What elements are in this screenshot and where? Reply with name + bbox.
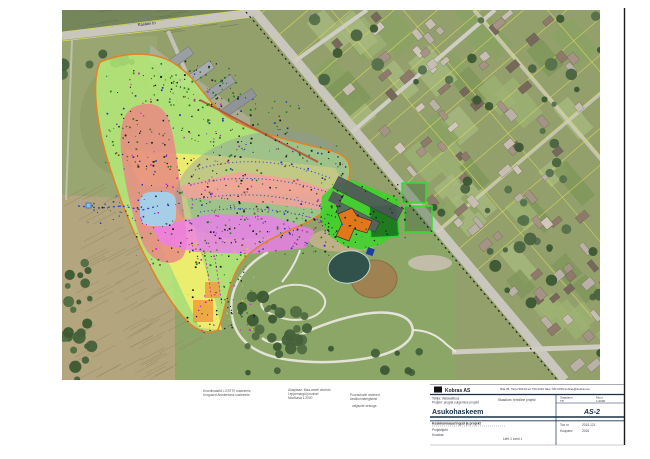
map-dot <box>238 186 240 188</box>
map-dot <box>328 151 330 153</box>
map-dot <box>154 75 155 76</box>
map-dot <box>245 266 246 267</box>
tree <box>574 87 580 93</box>
map-dot <box>167 204 168 205</box>
tree <box>268 315 277 324</box>
map-dot <box>251 290 252 291</box>
map-dot <box>387 198 388 199</box>
map-dot <box>219 155 220 156</box>
map-dot <box>153 174 154 175</box>
map-dot <box>316 193 317 194</box>
map-dot <box>344 217 345 218</box>
map-dot <box>150 101 152 103</box>
zone-orange-small-2 <box>193 300 213 322</box>
map-dot <box>154 213 155 214</box>
map-dot <box>146 224 147 225</box>
map-dot <box>221 299 222 300</box>
map-dot <box>238 196 239 197</box>
map-dot <box>296 218 298 220</box>
map-dot <box>220 311 222 313</box>
map-dot <box>151 142 153 144</box>
tree <box>546 244 553 251</box>
map-dot <box>347 246 348 247</box>
map-dot <box>122 128 123 129</box>
map-dot <box>287 220 289 222</box>
map-dot <box>193 174 194 175</box>
map-dot <box>404 219 406 221</box>
map-dot <box>204 190 205 191</box>
map-dot <box>237 308 238 309</box>
tree <box>561 224 571 234</box>
map-dot <box>191 198 192 199</box>
map-dot <box>256 233 257 234</box>
map-dot <box>120 211 121 212</box>
map-dot <box>191 207 192 208</box>
map-dot <box>152 263 154 265</box>
map-dot <box>189 244 190 245</box>
tree <box>545 58 558 71</box>
map-dot <box>169 98 170 99</box>
map-dot <box>191 81 193 83</box>
tree <box>77 272 83 278</box>
map-dot <box>362 236 363 237</box>
map-notes: Koordinaadid L-EST97 susteemis Korgused … <box>203 388 380 408</box>
map-dot <box>141 196 142 197</box>
map-dot <box>285 210 286 211</box>
map-dot <box>224 198 225 199</box>
map-dot <box>225 240 226 241</box>
map-dot <box>202 107 204 109</box>
map-dot <box>163 120 165 122</box>
map-dot <box>247 312 248 313</box>
house <box>616 344 629 358</box>
map-dot <box>172 221 173 222</box>
company-logo <box>434 387 442 393</box>
map-dot <box>215 235 216 236</box>
map-dot <box>262 201 263 202</box>
map-dot <box>255 108 256 109</box>
map-dot <box>343 195 344 196</box>
map-dot <box>228 100 229 101</box>
map-dot <box>203 196 204 197</box>
map-dot <box>207 121 208 122</box>
tree <box>556 15 564 23</box>
map-dot <box>191 138 192 139</box>
tree <box>285 343 297 355</box>
map-dot <box>398 233 399 234</box>
tree <box>247 292 258 303</box>
map-dot <box>194 99 196 101</box>
map-dot <box>177 191 178 192</box>
map-dot <box>170 77 171 78</box>
map-dot <box>306 243 307 244</box>
map-dot <box>289 232 291 234</box>
map-dot <box>222 89 223 90</box>
map-dot <box>331 215 332 216</box>
map-dot <box>168 120 169 121</box>
site-plan-map: Kastani tn Koordinaadid L-EST97 susteemi… <box>0 0 650 459</box>
map-dot <box>186 91 187 92</box>
map-dot <box>328 234 329 235</box>
map-dot <box>191 184 192 185</box>
map-dot <box>204 295 205 296</box>
map-dot <box>314 219 316 221</box>
tree <box>84 344 89 349</box>
map-dot <box>176 82 177 83</box>
map-dot <box>189 70 191 72</box>
map-dot <box>277 211 279 213</box>
tree <box>74 376 80 382</box>
map-dot <box>245 308 247 310</box>
tree <box>487 248 494 255</box>
map-dot <box>274 122 276 124</box>
map-dot <box>168 139 169 140</box>
map-dot <box>240 252 241 253</box>
map-dot <box>187 163 188 164</box>
map-dot <box>154 151 155 152</box>
map-dot <box>325 233 326 234</box>
map-dot <box>311 150 313 152</box>
map-dot <box>256 180 257 181</box>
map-dot <box>109 130 110 131</box>
map-dot <box>304 245 305 246</box>
map-dot <box>183 137 184 138</box>
map-dot <box>137 141 139 143</box>
map-dot <box>390 207 392 209</box>
map-dot <box>143 216 145 218</box>
map-dot <box>110 131 111 132</box>
map-dot <box>200 77 202 79</box>
map-dot <box>291 247 293 249</box>
map-dot <box>166 187 167 188</box>
map-dot <box>199 326 200 327</box>
map-dot <box>265 134 266 135</box>
map-dot <box>190 160 191 161</box>
zone-blue <box>140 192 176 226</box>
staadium-value: TP <box>560 399 564 403</box>
map-dot <box>206 243 207 244</box>
map-dot <box>187 321 188 322</box>
map-dot <box>143 115 144 116</box>
map-dot <box>241 180 243 182</box>
map-dot <box>182 192 183 193</box>
map-dot <box>130 111 131 112</box>
map-dot <box>224 242 225 243</box>
map-dot <box>335 163 336 164</box>
map-dot <box>286 132 287 133</box>
map-dot <box>221 147 222 148</box>
stage-line: Staadium: tehniline projekt <box>498 398 536 402</box>
map-dot <box>166 155 167 156</box>
tree <box>370 24 378 32</box>
map-dot <box>112 141 114 143</box>
map-dot <box>171 82 172 83</box>
map-dot <box>230 207 231 208</box>
map-dot <box>179 79 180 80</box>
tree <box>526 297 537 308</box>
worknr-label: Too nr <box>560 423 570 427</box>
map-dot <box>266 243 267 244</box>
tree <box>546 169 554 177</box>
map-dot <box>210 330 211 331</box>
map-dot <box>167 115 168 116</box>
map-dot <box>151 185 152 186</box>
map-dot <box>222 82 223 83</box>
drawing-sheet: Kastani tn Koordinaadid L-EST97 susteemi… <box>0 0 650 459</box>
map-dot <box>201 194 202 195</box>
map-dot <box>219 206 220 207</box>
map-dot <box>142 103 143 104</box>
map-dot <box>166 184 168 186</box>
map-dot <box>197 165 199 167</box>
worknr-value: 2015-121 <box>582 423 596 427</box>
map-dot <box>197 65 198 66</box>
map-dot <box>189 105 191 107</box>
map-dot <box>196 263 198 265</box>
map-dot <box>258 251 260 253</box>
map-dot <box>207 119 209 121</box>
map-dot <box>117 92 118 93</box>
map-dot <box>187 317 189 319</box>
map-dot <box>292 246 293 247</box>
map-dot <box>176 158 177 159</box>
map-dot <box>198 135 199 136</box>
map-dot <box>181 130 182 131</box>
map-dot <box>196 69 197 70</box>
map-dot <box>166 154 167 155</box>
map-dot <box>105 162 106 163</box>
lawn-patch <box>595 322 635 364</box>
tree <box>65 283 71 289</box>
map-dot <box>143 75 144 76</box>
map-dot <box>204 253 205 254</box>
map-dot <box>230 130 231 131</box>
map-dot <box>291 163 293 165</box>
map-dot <box>209 192 211 194</box>
map-dot <box>293 180 295 182</box>
map-dot <box>339 164 340 165</box>
map-dot <box>240 94 241 95</box>
map-dot <box>193 158 194 159</box>
map-dot <box>337 156 338 157</box>
map-dot <box>337 190 338 191</box>
map-dot <box>216 133 217 134</box>
map-dot <box>231 313 232 314</box>
map-dot <box>139 192 140 193</box>
house <box>609 341 625 356</box>
map-dot <box>192 289 194 291</box>
tree <box>275 350 283 358</box>
map-dot <box>229 74 230 75</box>
map-dot <box>220 135 221 136</box>
map-dot <box>324 230 326 232</box>
map-dot <box>250 304 251 305</box>
map-dot <box>294 221 295 222</box>
map-dot <box>162 226 163 227</box>
map-dot <box>116 152 118 154</box>
map-dot <box>242 216 243 217</box>
map-dot <box>189 230 190 231</box>
map-dot <box>237 259 238 260</box>
map-dot <box>305 220 307 222</box>
tree <box>552 158 562 168</box>
map-dot <box>193 94 194 95</box>
map-dot <box>221 277 222 278</box>
tree <box>371 58 384 71</box>
map-dot <box>215 94 216 95</box>
map-dot <box>227 298 228 299</box>
map-dot <box>228 68 229 69</box>
map-dot <box>269 151 270 152</box>
map-dot <box>106 76 107 77</box>
map-dot <box>262 210 263 211</box>
map-dot <box>212 170 214 172</box>
map-dot <box>191 229 193 231</box>
map-dot <box>150 264 151 265</box>
map-dot <box>173 104 174 105</box>
map-dot <box>147 157 148 158</box>
map-dot <box>206 159 208 161</box>
map-dot <box>211 256 212 257</box>
map-dot <box>171 88 173 90</box>
tree <box>489 260 501 272</box>
map-dot <box>193 246 194 247</box>
map-dot <box>324 245 326 247</box>
map-dot <box>272 201 273 202</box>
map-dot <box>354 219 356 221</box>
map-dot <box>199 100 200 101</box>
map-dot <box>150 99 151 100</box>
map-dot <box>235 178 236 179</box>
map-dot <box>121 114 122 115</box>
map-dot <box>139 161 140 162</box>
map-dot <box>296 229 297 230</box>
map-dot <box>211 79 213 81</box>
map-dot <box>240 276 241 277</box>
map-dot <box>201 204 203 206</box>
map-dot <box>146 143 147 144</box>
map-dot <box>335 236 337 238</box>
map-dot <box>211 300 212 301</box>
map-dot <box>155 160 157 162</box>
map-dot <box>230 88 231 89</box>
tree <box>524 233 537 246</box>
map-dot <box>211 106 212 107</box>
map-dot <box>322 177 324 179</box>
map-dot <box>277 226 279 228</box>
map-dot <box>250 109 252 111</box>
map-dot <box>146 168 147 169</box>
map-dot <box>356 234 357 235</box>
map-dot <box>141 220 142 221</box>
map-dot <box>284 166 285 167</box>
map-dot <box>265 221 266 222</box>
map-dot <box>137 207 138 208</box>
map-dot <box>198 109 200 111</box>
map-dot <box>241 141 242 142</box>
map-dot <box>161 89 163 91</box>
map-dot <box>199 262 200 263</box>
tree <box>302 323 312 333</box>
map-dot <box>241 316 243 318</box>
map-dot <box>188 131 190 133</box>
map-dot <box>321 153 323 155</box>
map-dot <box>311 189 312 190</box>
map-dot <box>240 110 242 112</box>
map-dot <box>231 242 232 243</box>
tree <box>301 312 309 320</box>
map-dot <box>116 195 117 196</box>
map-dot <box>355 242 356 243</box>
tree <box>566 69 577 80</box>
map-dot <box>236 149 237 150</box>
map-dot <box>298 105 299 106</box>
map-dot <box>220 155 221 156</box>
map-dot <box>140 113 141 114</box>
tree <box>84 267 91 274</box>
map-dot <box>345 166 346 167</box>
map-dot <box>215 161 216 162</box>
map-dot <box>339 200 340 201</box>
tree <box>267 333 277 343</box>
map-dot <box>284 254 285 255</box>
map-dot <box>170 91 171 92</box>
map-dot <box>240 156 242 158</box>
map-dot <box>302 253 303 254</box>
tree <box>73 331 86 344</box>
map-dot <box>203 119 204 120</box>
map-dot <box>180 242 182 244</box>
map-dot <box>178 169 180 171</box>
map-dot <box>227 313 228 314</box>
map-dot <box>269 231 270 232</box>
map-dot <box>133 118 135 120</box>
map-dot <box>305 242 306 243</box>
map-dot <box>361 186 362 187</box>
map-dot <box>280 232 281 233</box>
map-dot <box>127 215 128 216</box>
map-dot <box>289 228 290 229</box>
map-dot <box>227 161 229 163</box>
map-dot <box>151 259 152 260</box>
tree <box>551 102 556 107</box>
map-dot <box>403 208 404 209</box>
map-dot <box>219 237 221 239</box>
map-dot <box>169 101 171 103</box>
map-dot <box>150 164 152 166</box>
map-dot <box>274 101 275 102</box>
map-dot <box>279 120 281 122</box>
map-dot <box>275 123 276 124</box>
map-dot <box>237 311 238 312</box>
map-dot <box>299 214 300 215</box>
map-dot <box>307 168 309 170</box>
map-dot <box>252 230 254 232</box>
map-dot <box>297 239 298 240</box>
tree <box>549 139 559 149</box>
map-dot <box>245 174 246 175</box>
map-dot <box>155 196 157 198</box>
map-dot <box>137 124 138 125</box>
map-dot <box>205 301 207 303</box>
map-dot <box>322 225 323 226</box>
map-dot <box>320 204 321 205</box>
tree <box>351 29 363 41</box>
map-dot <box>123 108 125 110</box>
map-dot <box>260 242 261 243</box>
map-dot <box>179 114 181 116</box>
tree <box>309 14 320 25</box>
